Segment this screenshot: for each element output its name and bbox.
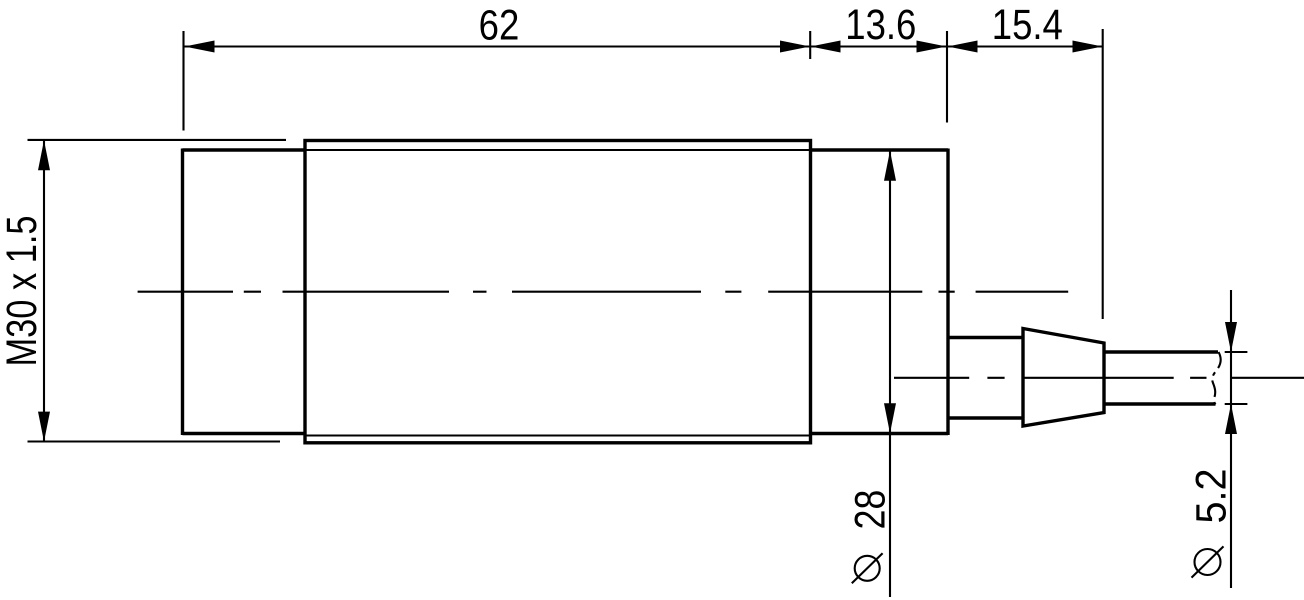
svg-text:5.2: 5.2 bbox=[1187, 469, 1235, 524]
svg-text:15.4: 15.4 bbox=[992, 1, 1063, 48]
svg-text:62: 62 bbox=[479, 2, 520, 49]
svg-text:28: 28 bbox=[846, 490, 894, 530]
svg-text:M30 x 1.5: M30 x 1.5 bbox=[0, 215, 46, 366]
svg-text:13.6: 13.6 bbox=[845, 1, 916, 48]
